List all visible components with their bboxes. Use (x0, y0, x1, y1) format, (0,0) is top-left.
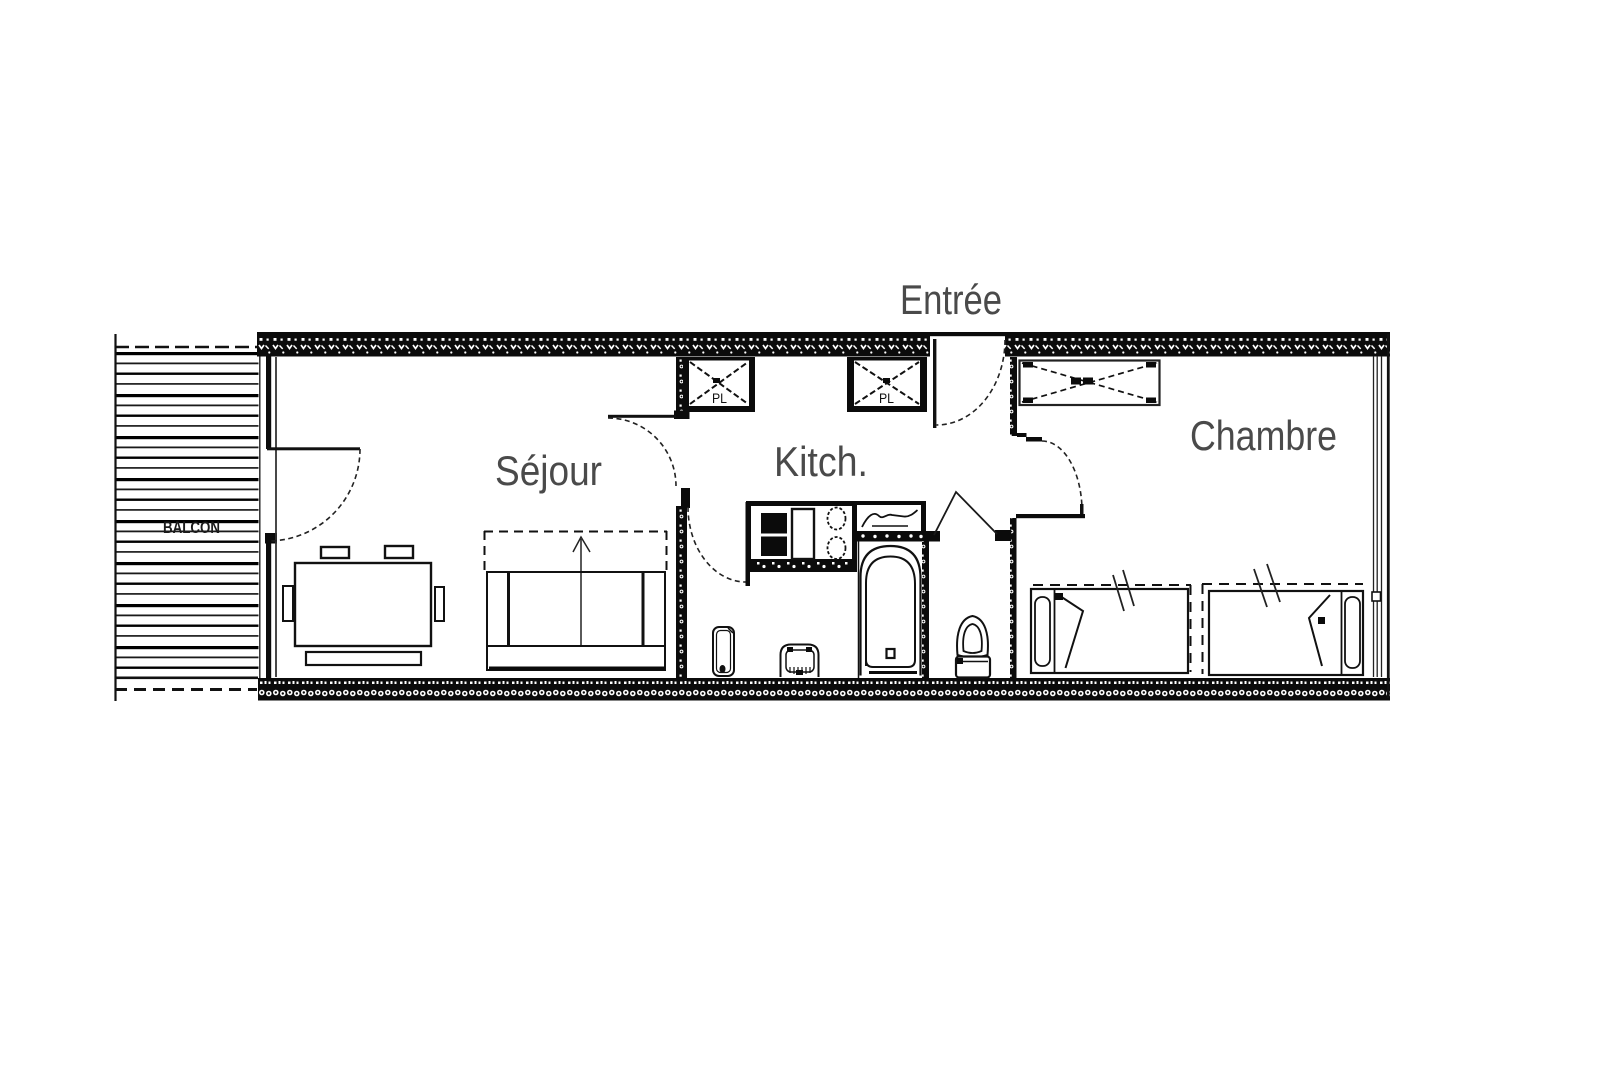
svg-text:Entrée: Entrée (900, 276, 1002, 323)
svg-text:PL: PL (712, 390, 727, 406)
svg-text:Chambre: Chambre (1190, 412, 1337, 459)
svg-text:BALCON: BALCON (163, 518, 220, 537)
svg-text:Séjour: Séjour (495, 447, 602, 494)
svg-text:PL: PL (879, 390, 894, 406)
svg-text:Kitch.: Kitch. (774, 438, 868, 485)
